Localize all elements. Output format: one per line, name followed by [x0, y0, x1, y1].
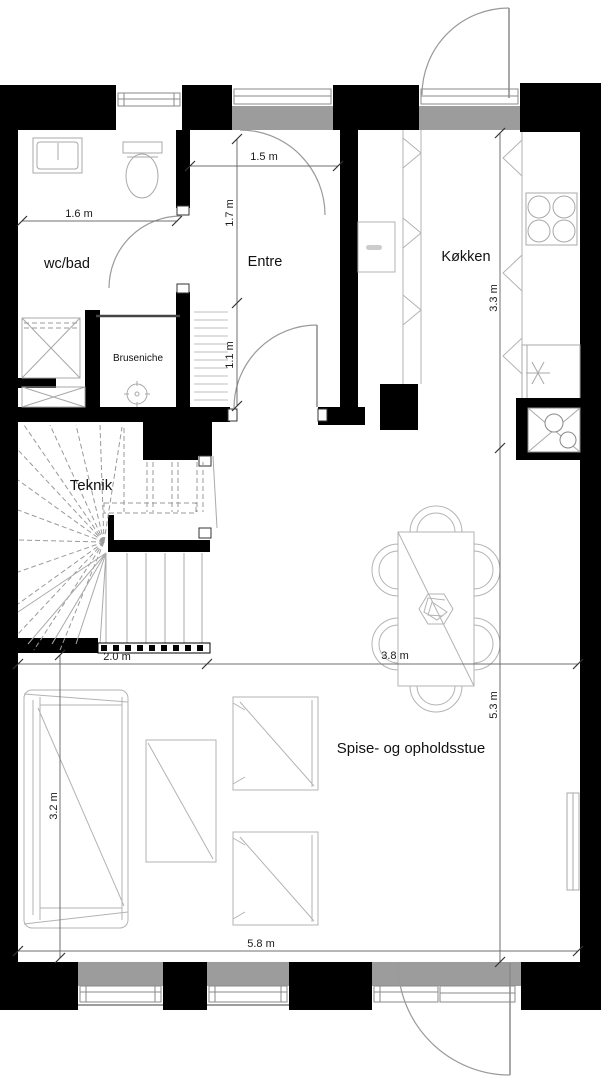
armchair — [233, 832, 318, 925]
dimension-lines — [13, 128, 583, 967]
entrance-grate — [194, 312, 228, 400]
window-wcbad — [118, 93, 180, 106]
room-label-teknik: Teknik — [70, 477, 113, 494]
window-bottom-2 — [207, 986, 289, 1005]
dim-label-3.2m: 3.2 m — [48, 792, 60, 820]
cooktop-icon — [526, 193, 577, 245]
appliance-icon — [358, 222, 395, 272]
room-label-wcbad: wc/bad — [43, 256, 90, 272]
room-label-bruseniche: Bruseniche — [113, 353, 163, 364]
door-kitchen-entrance — [422, 8, 509, 98]
sofa — [24, 690, 128, 928]
door-entre-living — [234, 325, 317, 408]
dining-table — [398, 532, 474, 686]
dim-label-1.1m: 1.1 m — [224, 341, 236, 369]
dim-label-3.3m: 3.3 m — [488, 284, 500, 312]
door-wcbad — [109, 216, 181, 288]
sink-icon — [33, 138, 82, 173]
kitchen-counter-left — [403, 130, 421, 384]
floor-plan: wc/bad Entre Køkken Bruseniche Teknik Sp… — [0, 0, 601, 1080]
dim-label-3.8m: 3.8 m — [381, 650, 409, 662]
window-bottom-1 — [78, 986, 163, 1005]
dim-label-2.0m: 2.0 m — [103, 651, 131, 663]
counter-unit-icon — [22, 387, 85, 407]
window-kitchen-door-frame — [421, 89, 518, 104]
floor-plan-drawing: wc/bad Entre Køkken Bruseniche Teknik Sp… — [0, 0, 601, 1080]
kitchen-counter-right — [503, 132, 522, 398]
washing-machine-icon — [22, 318, 80, 378]
room-label-spise: Spise- og opholdsstue — [337, 740, 485, 757]
toilet-icon — [123, 142, 162, 198]
room-label-entre: Entre — [248, 254, 283, 270]
radiator — [567, 793, 579, 890]
coffee-table — [146, 740, 216, 862]
dim-label-1.7m: 1.7 m — [224, 199, 236, 227]
armchair — [233, 697, 318, 790]
dim-label-1.5m: 1.5 m — [250, 151, 278, 163]
walls — [0, 83, 601, 1010]
room-label-kokken: Køkken — [441, 249, 490, 265]
door-entre-entrance — [240, 130, 325, 215]
dim-label-5.8m: 5.8 m — [247, 938, 275, 950]
window-bottom-3 — [374, 986, 438, 1002]
dim-label-1.6m: 1.6 m — [65, 208, 93, 220]
floor-drain-icon — [124, 381, 150, 407]
kitchen-sink-icon — [516, 398, 585, 460]
window-entre-door-frame — [234, 89, 331, 104]
dishwasher-icon — [522, 345, 580, 403]
dim-label-5.3m: 5.3 m — [488, 691, 500, 719]
